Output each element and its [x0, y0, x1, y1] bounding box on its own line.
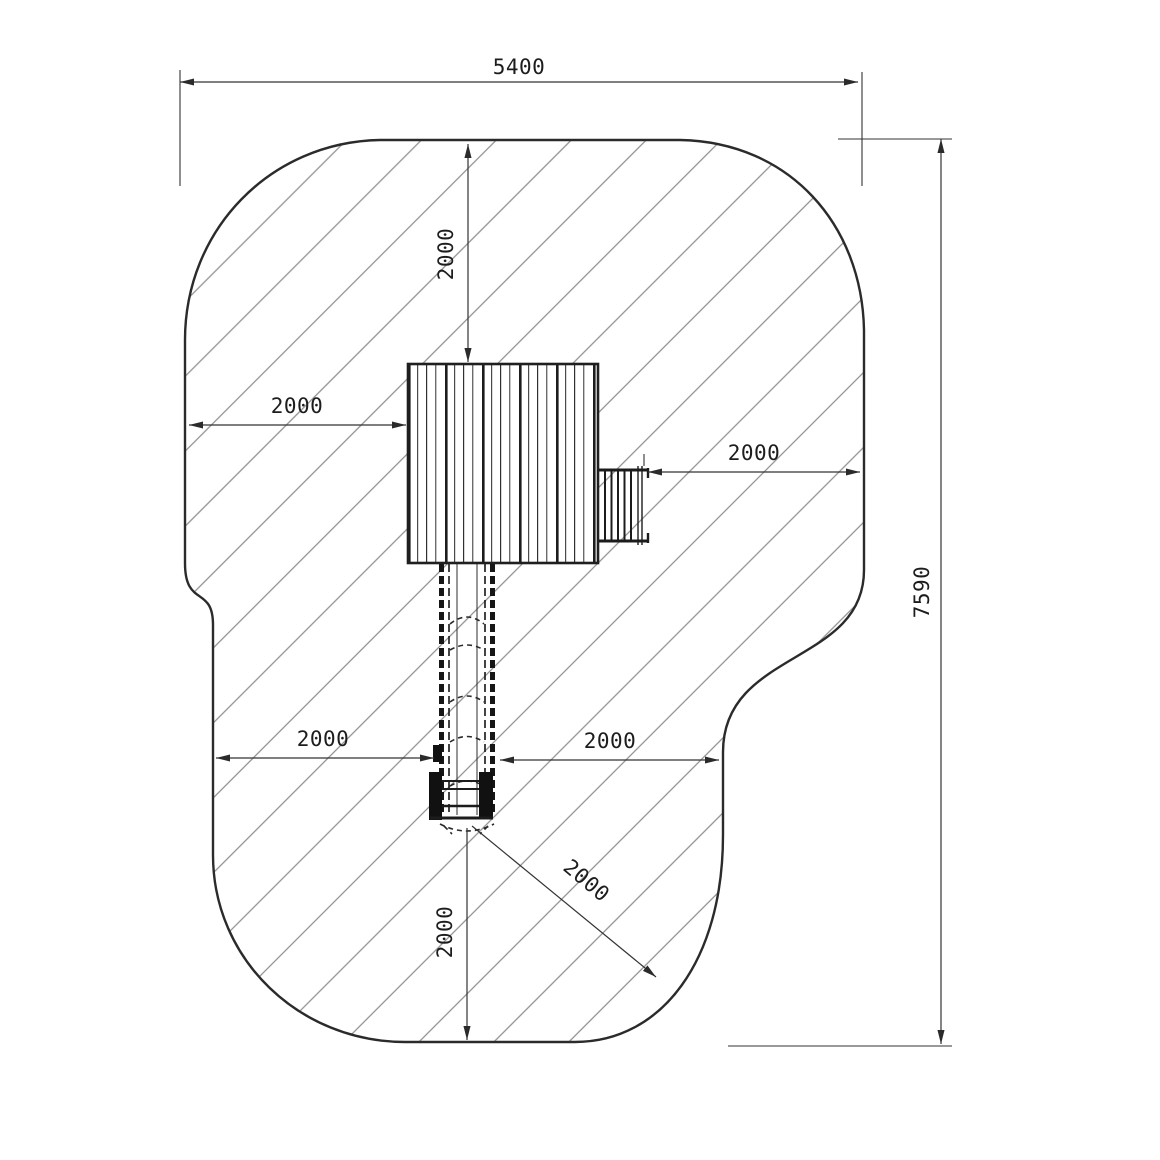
- dim-label-lower-left-clearance: 2000: [297, 727, 350, 751]
- slide-support-left: [433, 745, 442, 762]
- tower-platform-deck: [408, 364, 598, 563]
- dim-label-lower-right-clearance: 2000: [584, 729, 637, 753]
- dim-label-top-clearance: 2000: [434, 228, 458, 281]
- dim-label-right-clearance: 2000: [728, 441, 781, 465]
- site-plan-page: 5400 7590 2000 2000 2000 2000 2000 2000: [0, 0, 1160, 1160]
- dim-label-overall-height: 7590: [910, 566, 934, 619]
- dim-label-left-clearance: 2000: [271, 394, 324, 418]
- dim-label-bottom-clearance: 2000: [433, 906, 457, 959]
- site-plan-drawing: 5400 7590 2000 2000 2000 2000 2000 2000: [0, 0, 1160, 1160]
- dim-label-overall-width: 5400: [493, 55, 546, 79]
